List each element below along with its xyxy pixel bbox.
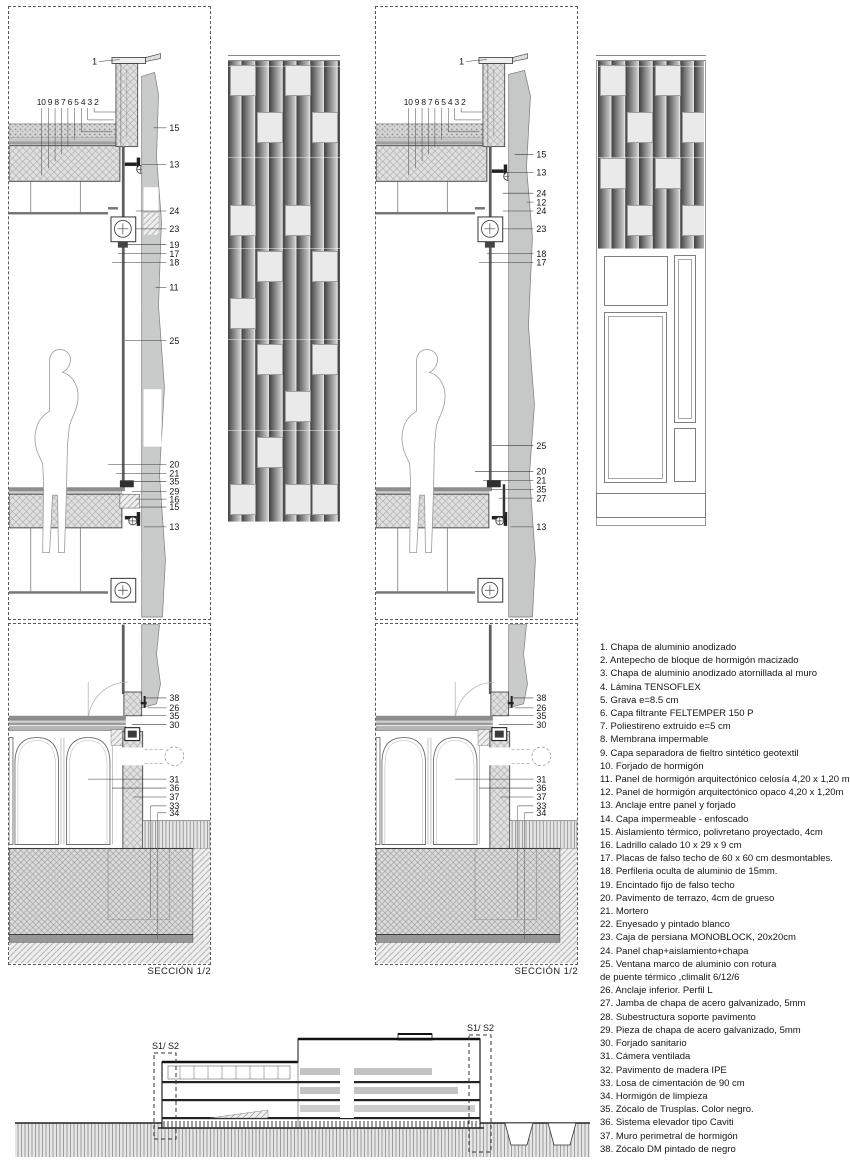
callout-30: 30: [536, 720, 546, 730]
facade-panel-opaque: [509, 70, 536, 617]
vent-opening: [121, 747, 145, 765]
facade-opening-panel: [312, 112, 338, 143]
window-frame: [489, 625, 492, 694]
window-pane: [674, 255, 696, 423]
detail-frame-3: 382635303136373334: [8, 623, 211, 965]
legend-item: 25. Ventana marco de aluminio con rotura…: [600, 958, 850, 984]
coping: [479, 58, 513, 64]
legend-item: 34. Hormigón de limpieza: [600, 1090, 850, 1103]
legend-item: 33. Losa de cimentación de 90 cm: [600, 1077, 850, 1090]
soil-hatch: [9, 943, 210, 964]
callout-38: 38: [169, 693, 179, 703]
legend-item: 36. Sistema elevador tipo Caviti: [600, 1116, 850, 1129]
legend-item: 31. Cámera ventilada: [600, 1050, 850, 1063]
coping: [112, 58, 146, 64]
foundation-slab: [376, 848, 560, 934]
roof-slab: [9, 146, 120, 182]
wall-section-detail-2: 1 10 9 8 7 6 5 4 3 2 1513241224231817252…: [376, 7, 577, 619]
legend-item: 14. Capa impermeable - enfoscado: [600, 813, 850, 826]
exterior-ground: [143, 821, 210, 849]
perforated-brick: [111, 730, 123, 746]
stair-void: [340, 1041, 354, 1118]
facade-opening-panel: [285, 484, 311, 515]
legend-item: 9. Capa separadora de fieltro sintético …: [600, 747, 850, 760]
window-frame: [122, 147, 125, 490]
perforated-brick: [478, 730, 490, 746]
legend-item: 17. Placas de falso techo de 60 x 60 cm …: [600, 852, 850, 865]
legend-item: 24. Panel chap+aislamiento+chapa: [600, 945, 850, 958]
facade-opening-panel: [230, 205, 256, 236]
callout-27: 27: [536, 493, 546, 503]
floor-slab-line: [162, 1117, 480, 1119]
facade-opening-panel: [257, 112, 283, 143]
facade-opening-panel: [230, 484, 256, 515]
vent-circle: [165, 747, 184, 766]
facade-opening-panel: [285, 65, 311, 96]
legend-item: 20. Pavimento de terrazo, 4cm de grueso: [600, 892, 850, 905]
facade-opening-panel: [312, 344, 338, 375]
facade-opening-panel: [257, 251, 283, 282]
vent-circle: [532, 747, 551, 766]
callout-13: 13: [169, 522, 179, 532]
legend-item: 13. Anclaje entre panel y forjado: [600, 799, 850, 812]
facade-opening-panel: [627, 205, 653, 236]
legend-item: 5. Grava e=8.5 cm: [600, 694, 850, 707]
legend-item: 10. Forjado de hormigón: [600, 760, 850, 773]
legend-item: 6. Capa filtrante FELTEMPER 150 P: [600, 707, 850, 720]
facade-opening-panel: [312, 251, 338, 282]
legend-item: 16. Ladrillo calado 10 x 29 x 9 cm: [600, 839, 850, 852]
detail-frame-4: 382635303136373334: [375, 623, 578, 965]
callout-35: 35: [169, 476, 179, 486]
section-label-2: SECCIÓN 1/2: [463, 966, 578, 977]
glazing-line: [678, 259, 692, 419]
suspended-ceiling: [9, 212, 108, 214]
callout-18: 18: [169, 258, 179, 268]
building-section-overview: S1/ S2 S1/ S2: [10, 1015, 590, 1168]
callout-13: 13: [169, 160, 179, 170]
floor-slab-line: [162, 1099, 480, 1101]
terrazzo-floor: [9, 716, 126, 721]
caviti-ticks: [162, 1121, 480, 1127]
terrazzo-floor: [376, 716, 493, 721]
legend-item: 19. Encintado fijo de falso techo: [600, 879, 850, 892]
facade-opening-panel: [312, 484, 338, 515]
callout-25: 25: [169, 336, 179, 346]
legend-item: 27. Jamba de chapa de acero galvanizado,…: [600, 997, 850, 1010]
window-frame: [122, 625, 125, 694]
materials-legend: 1. Chapa de aluminio anodizado2. Antepec…: [600, 641, 850, 1156]
legend-item: 11. Panel de hormigón arquitectónico cel…: [600, 773, 850, 786]
forjado-sanitario-arches: [376, 738, 479, 845]
callout-34: 34: [536, 808, 546, 818]
legend-item: 21. Mortero: [600, 905, 850, 918]
window-band: [168, 1066, 290, 1079]
facade-opening-panel: [285, 391, 311, 422]
lean-concrete: [376, 935, 560, 943]
callout-25: 25: [536, 441, 546, 451]
facade-opening-panel: [230, 65, 256, 96]
facade-opening-panel: [230, 298, 256, 329]
forjado-sanitario-arches: [9, 738, 112, 845]
construction-detail-sheet: 1 10 9 8 7 6 5 4 3 2 1513242319171811252…: [0, 0, 850, 1168]
window-pane: [674, 428, 696, 482]
detail-frame-2: 1 10 9 8 7 6 5 4 3 2 1513241224231817252…: [375, 6, 578, 620]
callout-15: 15: [536, 150, 546, 160]
legend-item: 3. Chapa de aluminio anodizado atornilla…: [600, 667, 850, 680]
facade-opening-panel: [627, 112, 653, 143]
layer-callout-row: 10 9 8 7 6 5 4 3 2: [404, 97, 466, 107]
soil-hatch: [376, 943, 577, 964]
facade-panel: [509, 625, 528, 708]
callout-30: 30: [169, 720, 179, 730]
glazing-line: [608, 316, 663, 479]
facade-opening-panel: [682, 112, 704, 143]
legend-item: 37. Muro perimetral de hormigón: [600, 1130, 850, 1143]
plinth-block: [124, 692, 142, 716]
legend-item: 32. Pavimento de madera IPE: [600, 1064, 850, 1077]
window-pane: [604, 312, 667, 483]
plinth-block: [491, 692, 509, 716]
detail-frame-1: 1 10 9 8 7 6 5 4 3 2 1513242319171811252…: [8, 6, 211, 620]
callout-11: 11: [169, 282, 178, 292]
facade-opening-panel: [655, 158, 681, 189]
callout-24: 24: [169, 206, 179, 216]
callout-38: 38: [536, 693, 546, 703]
facade-opening-panel: [655, 65, 681, 96]
legend-item: 8. Membrana impermable: [600, 733, 850, 746]
legend-item: 38. Zócalo DM pintado de negro: [600, 1143, 850, 1156]
legend-item: 28. Subestructura soporte pavimento: [600, 1011, 850, 1024]
building-outline: [162, 1039, 480, 1128]
corridor-strip: [300, 1105, 475, 1112]
legend-item: 7. Poliestireno extruido e=5 cm: [600, 720, 850, 733]
callout-15: 15: [169, 502, 179, 512]
base-section-detail-3: 382635303136373334: [9, 624, 210, 964]
roof-slab: [376, 146, 487, 182]
legend-item: 30. Forjado sanitario: [600, 1037, 850, 1050]
facade-opening-panel: [257, 437, 283, 468]
window-frame: [489, 147, 492, 490]
legend-item: 26. Anclaje inferior. Perfil L: [600, 984, 850, 997]
vent-opening: [488, 747, 512, 765]
legend-item: 1. Chapa de aluminio anodizado: [600, 641, 850, 654]
suspended-ceiling: [376, 212, 475, 214]
callout-13: 13: [536, 522, 546, 532]
wall-section-detail-1: 1 10 9 8 7 6 5 4 3 2 1513242319171811252…: [9, 7, 210, 619]
facade-opening-panel: [682, 205, 704, 236]
legend-item: 2. Antepecho de bloque de hormigón maciz…: [600, 654, 850, 667]
layer-callout-row: 10 9 8 7 6 5 4 3 2: [37, 97, 99, 107]
facade-panel: [142, 625, 161, 708]
legend-item: 15. Aislamiento térmico, polivretano pro…: [600, 826, 850, 839]
callout-1: 1: [459, 56, 464, 66]
legend-item: 29. Pieza de chapa de acero galvanizado,…: [600, 1024, 850, 1037]
legend-item: 22. Enyesado y pintado blanco: [600, 918, 850, 931]
facade-elevation-left: [228, 61, 340, 522]
facade-opening-panel: [285, 205, 311, 236]
callout-34: 34: [169, 808, 179, 818]
section-marker-label-right: S1/ S2: [467, 1023, 494, 1033]
corridor-strip: [300, 1087, 458, 1094]
callout-23: 23: [169, 224, 179, 234]
facade-panel-celosia: [142, 72, 166, 617]
facade-elevation-right: [598, 61, 704, 249]
exterior-ground: [510, 821, 577, 849]
legend-item: 23. Caja de persiana MONOBLOCK, 20x20cm: [600, 931, 850, 944]
legend-item: 18. Perfileria oculta de aluminio de 15m…: [600, 865, 850, 878]
facade-opening-panel: [600, 158, 626, 189]
facade-opening-panel: [257, 344, 283, 375]
callout-13: 13: [536, 168, 546, 178]
foundation-slab: [9, 848, 193, 934]
floor-slab-line: [162, 1081, 480, 1083]
gravel-layer: [9, 124, 118, 139]
section-marker-label-left: S1/ S2: [152, 1041, 179, 1051]
section-label-1: SECCIÓN 1/2: [96, 966, 211, 977]
lean-concrete: [9, 935, 193, 943]
window-pane: [604, 256, 668, 306]
base-strip: [596, 493, 706, 518]
callout-24: 24: [536, 206, 546, 216]
corridor-strip: [300, 1068, 432, 1075]
callout-1: 1: [92, 56, 97, 66]
legend-item: 12. Panel de hormigón arquitectónico opa…: [600, 786, 850, 799]
legend-item: 4. Lámina TENSOFLEX: [600, 681, 850, 694]
callout-23: 23: [536, 224, 546, 234]
callout-15: 15: [169, 123, 179, 133]
callout-17: 17: [536, 258, 546, 268]
facade-opening-panel: [600, 65, 626, 96]
base-section-detail-4: 382635303136373334: [376, 624, 577, 964]
legend-item: 35. Zócalo de Trusplas. Color negro.: [600, 1103, 850, 1116]
gravel-layer: [376, 124, 485, 139]
